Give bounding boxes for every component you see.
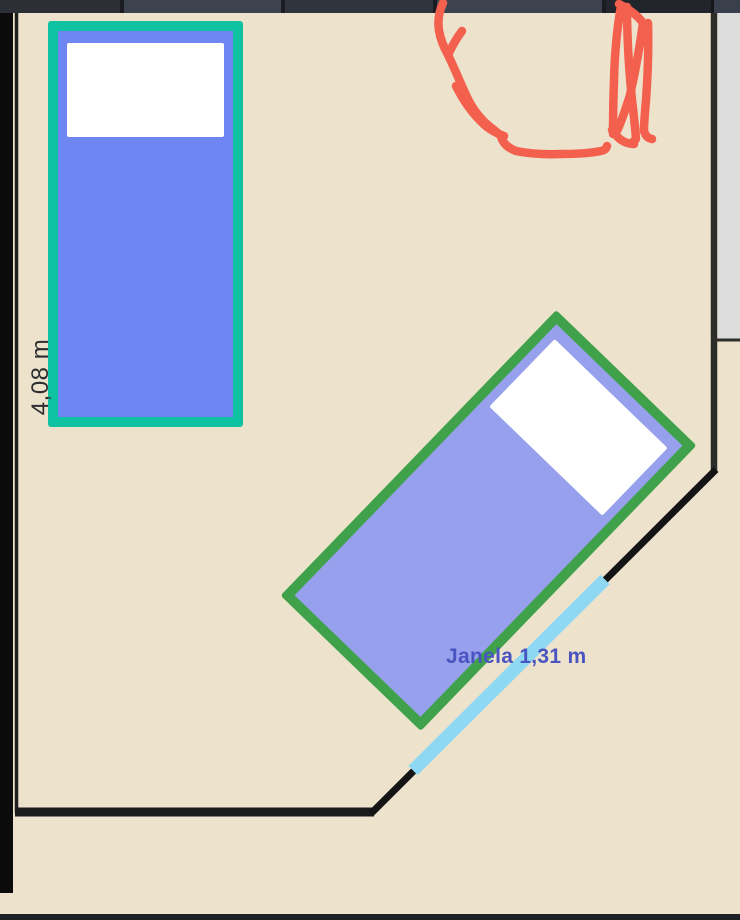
red-scribble-group	[438, 3, 652, 154]
red-scribble-curve	[438, 3, 607, 154]
red-scribble-n4	[644, 23, 652, 139]
floor-plan-editor-screen: 4,08 m Janela 1,31 m	[0, 0, 740, 920]
red-scribble-branch	[449, 31, 462, 53]
red-ink-annotations	[0, 0, 740, 920]
red-scribble-hook	[612, 130, 634, 144]
